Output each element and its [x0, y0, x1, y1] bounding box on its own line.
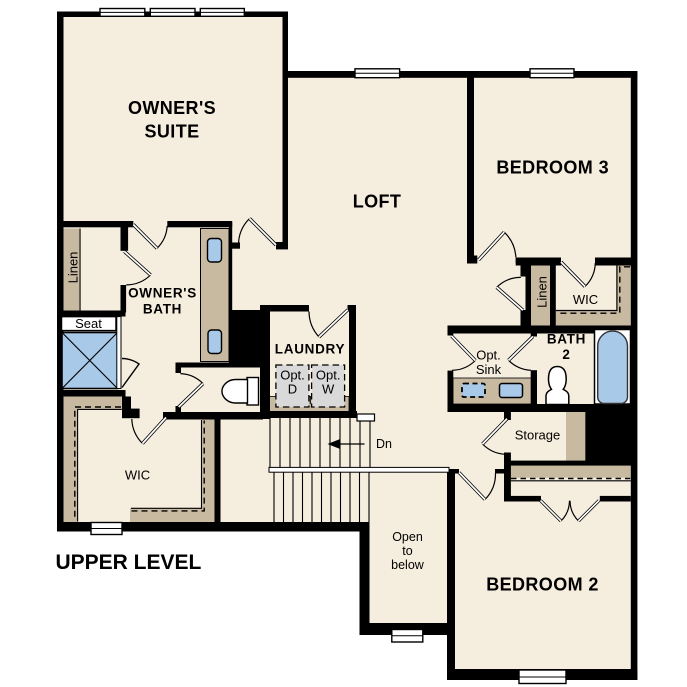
svg-text:Open: Open	[392, 530, 423, 544]
svg-text:to: to	[402, 544, 412, 558]
svg-text:BEDROOM 3: BEDROOM 3	[496, 158, 609, 178]
svg-text:BATH: BATH	[143, 302, 182, 317]
svg-text:OWNER'S: OWNER'S	[128, 98, 216, 118]
svg-text:WIC: WIC	[125, 468, 150, 483]
svg-text:Dn: Dn	[376, 437, 392, 451]
svg-text:UPPER LEVEL: UPPER LEVEL	[56, 551, 202, 574]
svg-text:Opt.: Opt.	[316, 368, 341, 383]
svg-text:OWNER'S: OWNER'S	[128, 286, 197, 301]
svg-text:Seat: Seat	[75, 316, 102, 331]
svg-text:2: 2	[562, 347, 570, 362]
svg-text:W: W	[322, 382, 335, 397]
svg-text:LOFT: LOFT	[353, 191, 402, 211]
svg-text:Linen: Linen	[66, 252, 81, 284]
svg-text:BEDROOM 2: BEDROOM 2	[486, 575, 599, 595]
svg-text:Opt.: Opt.	[476, 348, 501, 363]
svg-text:Sink: Sink	[476, 362, 502, 377]
svg-text:Linen: Linen	[535, 276, 550, 308]
svg-text:below: below	[391, 558, 425, 572]
svg-text:SUITE: SUITE	[144, 121, 199, 141]
svg-text:Storage: Storage	[515, 428, 561, 443]
svg-text:LAUNDRY: LAUNDRY	[275, 342, 345, 357]
svg-text:BATH: BATH	[547, 332, 586, 347]
svg-text:WIC: WIC	[573, 292, 598, 307]
svg-text:D: D	[288, 382, 297, 397]
svg-text:Opt.: Opt.	[280, 368, 305, 383]
